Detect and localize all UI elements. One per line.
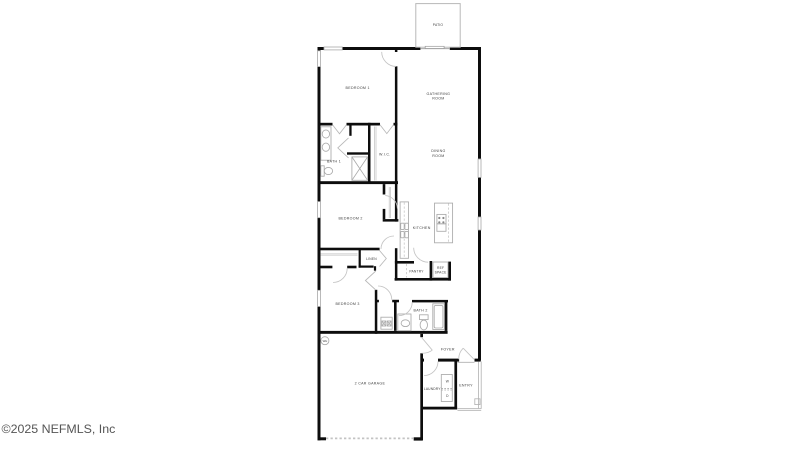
svg-text:©2025 NEFMLS, Inc: ©2025 NEFMLS, Inc <box>2 422 116 436</box>
svg-text:DINING: DINING <box>431 149 445 153</box>
svg-text:W.I.C.: W.I.C. <box>379 153 391 157</box>
svg-text:2 CAR GARAGE: 2 CAR GARAGE <box>355 382 386 386</box>
svg-text:SPACE: SPACE <box>435 271 448 275</box>
svg-text:ENTRY: ENTRY <box>459 383 473 387</box>
svg-text:ROOM: ROOM <box>432 154 444 158</box>
svg-text:PANTRY: PANTRY <box>409 270 424 274</box>
svg-text:D: D <box>446 394 449 398</box>
svg-text:GATHERING: GATHERING <box>426 92 450 96</box>
svg-text:BEDROOM 2: BEDROOM 2 <box>338 217 362 221</box>
svg-text:PATIO: PATIO <box>433 23 444 27</box>
svg-text:FOYER: FOYER <box>441 348 455 352</box>
svg-text:BATH 1: BATH 1 <box>327 159 341 163</box>
svg-text:KITCHEN: KITCHEN <box>413 226 431 230</box>
svg-text:BATH 2: BATH 2 <box>414 308 428 312</box>
svg-text:BEDROOM 3: BEDROOM 3 <box>335 302 359 306</box>
svg-text:LAUNDRY: LAUNDRY <box>424 387 441 391</box>
svg-text:WH: WH <box>323 339 328 343</box>
svg-text:ROOM: ROOM <box>432 97 444 101</box>
svg-text:REF: REF <box>437 266 444 270</box>
svg-text:LINEN: LINEN <box>366 257 377 261</box>
svg-text:BEDROOM 1: BEDROOM 1 <box>346 86 370 90</box>
